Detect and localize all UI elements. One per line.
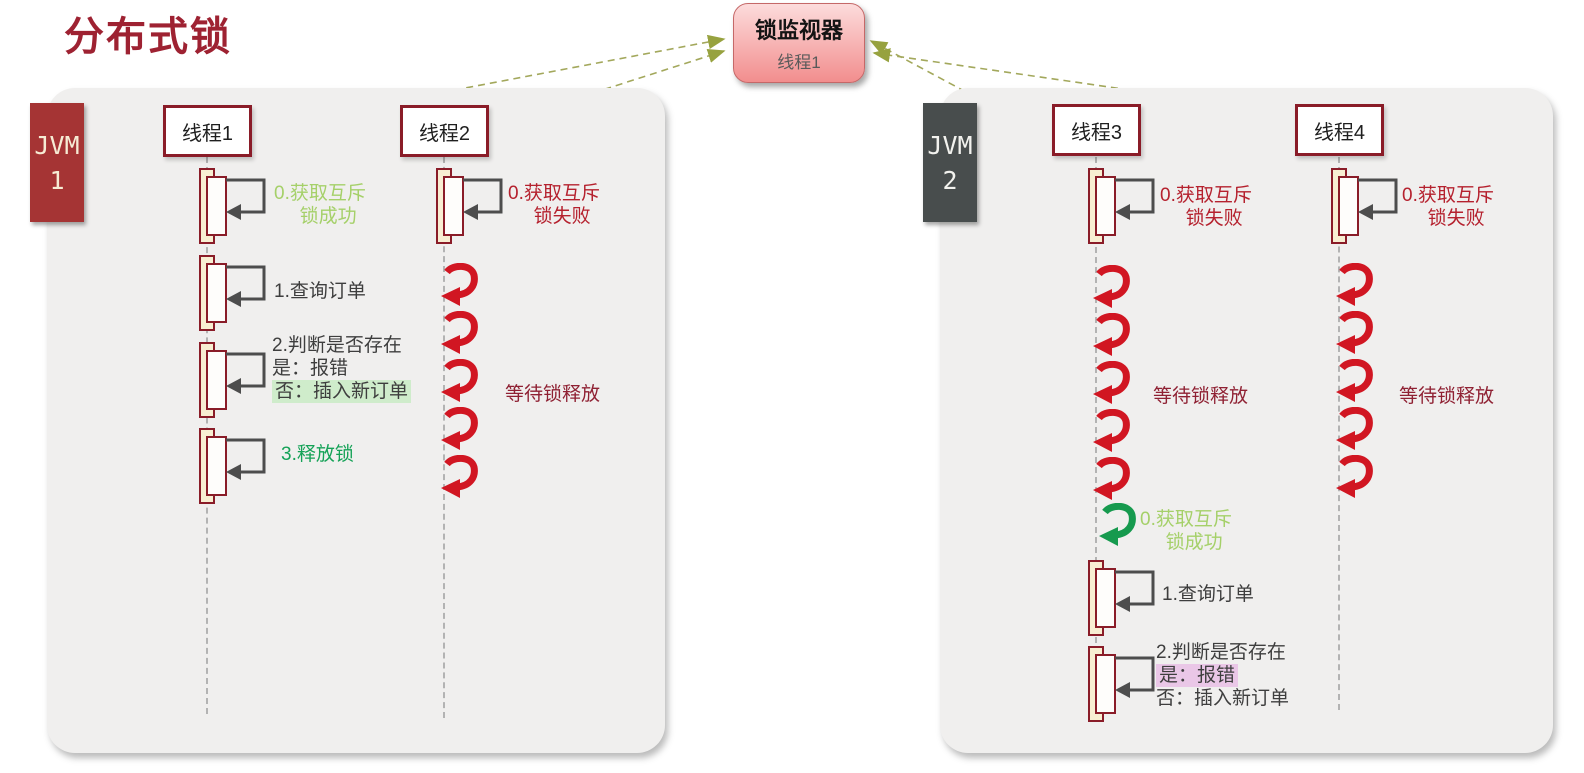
thread1-step1-label: 1.查询订单 — [274, 280, 366, 303]
thread4-fail-line2: 锁失败 — [1402, 207, 1494, 230]
self-call-arrow-icon — [1356, 176, 1404, 222]
thread3-activation-step0 — [1088, 168, 1164, 244]
lock-monitor-title: 锁监视器 — [755, 13, 843, 45]
self-call-arrow-icon — [224, 263, 272, 309]
thread1-step2-no-highlighted: 否：插入新订单 — [272, 380, 411, 403]
jvm1-label-box: JVM 1 — [30, 103, 84, 222]
spin-arrow-icon — [1090, 457, 1130, 501]
spin-arrow-icon — [1333, 359, 1373, 403]
thread4-name: 线程4 — [1314, 116, 1365, 145]
thread3-step1-label: 1.查询订单 — [1162, 583, 1254, 606]
thread3-success-line1: 0.获取互斥 — [1140, 508, 1232, 531]
thread3-acquire-fail-label: 0.获取互斥 锁失败 — [1160, 184, 1252, 230]
thread3-activation-step1 — [1088, 560, 1164, 636]
thread1-activation-step1 — [199, 255, 275, 331]
thread1-step2-label: 2.判断是否存在 是：报错 否：插入新订单 — [272, 334, 411, 403]
spin-arrow-icon — [1333, 311, 1373, 355]
spin-arrow-icon — [438, 407, 478, 451]
jvm1-line1: JVM — [34, 131, 79, 160]
self-call-arrow-icon — [1113, 568, 1161, 614]
thread2-wait-spin-arrows — [438, 263, 478, 503]
thread2-wait-label: 等待锁释放 — [505, 383, 600, 406]
spin-arrow-icon — [1333, 263, 1373, 307]
thread2-fail-line2: 锁失败 — [508, 205, 600, 228]
thread3-box: 线程3 — [1052, 104, 1141, 156]
thread4-activation-step0 — [1331, 168, 1407, 244]
spin-arrow-icon — [438, 359, 478, 403]
spin-arrow-icon — [438, 311, 478, 355]
thread1-box: 线程1 — [163, 105, 252, 157]
self-call-arrow-icon — [1113, 176, 1161, 222]
thread2-box: 线程2 — [400, 105, 489, 157]
jvm2-line1: JVM — [927, 131, 972, 160]
lock-monitor-subtitle: 线程1 — [777, 48, 820, 73]
thread1-acquire-success-label: 0.获取互斥 锁成功 — [274, 182, 366, 228]
thread1-step2-yes: 是：报错 — [272, 357, 411, 380]
spin-arrow-icon — [1090, 361, 1130, 405]
self-call-arrow-icon — [224, 176, 272, 222]
thread1-name: 线程1 — [182, 117, 233, 146]
thread4-wait-spin-arrows — [1333, 263, 1373, 503]
distributed-lock-diagram: 分布式锁 锁监视器 线程1 JVM 1 JVM 2 线程1 线程2 线程3 线程… — [0, 0, 1584, 773]
thread1-activation-step3 — [199, 428, 275, 504]
spin-arrow-icon — [438, 455, 478, 499]
spin-arrow-icon — [1090, 313, 1130, 357]
self-call-arrow-icon — [461, 176, 509, 222]
thread3-success-spin-arrow — [1096, 503, 1136, 551]
thread2-fail-line1: 0.获取互斥 — [508, 182, 600, 205]
thread1-acquire-line2: 锁成功 — [274, 205, 366, 228]
thread4-box: 线程4 — [1295, 104, 1384, 156]
thread3-step2-title: 2.判断是否存在 — [1156, 641, 1289, 664]
thread1-acquire-line1: 0.获取互斥 — [274, 182, 366, 205]
self-call-arrow-icon — [224, 350, 272, 396]
thread3-fail-line2: 锁失败 — [1160, 207, 1252, 230]
thread3-step2-no: 否：插入新订单 — [1156, 687, 1289, 710]
thread4-wait-label: 等待锁释放 — [1399, 385, 1494, 408]
thread3-step2-yes-highlighted: 是：报错 — [1156, 664, 1238, 687]
jvm2-label-box: JVM 2 — [923, 103, 977, 222]
spin-arrow-icon — [1090, 265, 1130, 309]
thread3-wait-spin-arrows — [1090, 265, 1130, 505]
thread1-activation-step2 — [199, 342, 275, 418]
spin-arrow-icon — [438, 263, 478, 307]
self-call-arrow-icon — [224, 436, 272, 482]
spin-arrow-icon — [1090, 409, 1130, 453]
thread2-acquire-fail-label: 0.获取互斥 锁失败 — [508, 182, 600, 228]
page-title: 分布式锁 — [64, 4, 232, 62]
thread3-acquire-success-label: 0.获取互斥 锁成功 — [1140, 508, 1232, 554]
thread1-release-label: 3.释放锁 — [281, 443, 354, 466]
thread4-fail-line1: 0.获取互斥 — [1402, 184, 1494, 207]
thread3-success-line2: 锁成功 — [1140, 531, 1232, 554]
thread4-acquire-fail-label: 0.获取互斥 锁失败 — [1402, 184, 1494, 230]
thread3-step2-label: 2.判断是否存在 是：报错 否：插入新订单 — [1156, 641, 1289, 710]
self-call-arrow-icon — [1113, 654, 1161, 700]
spin-arrow-icon — [1333, 455, 1373, 499]
lock-monitor-box: 锁监视器 线程1 — [733, 3, 865, 83]
thread1-step2-title: 2.判断是否存在 — [272, 334, 411, 357]
spin-arrow-icon — [1096, 503, 1136, 547]
thread2-activation-step0 — [436, 168, 512, 244]
thread3-activation-step2 — [1088, 646, 1164, 722]
thread2-name: 线程2 — [419, 117, 470, 146]
jvm2-line2: 2 — [942, 166, 957, 195]
spin-arrow-icon — [1333, 407, 1373, 451]
thread3-wait-label: 等待锁释放 — [1153, 385, 1248, 408]
jvm1-line2: 1 — [49, 166, 64, 195]
thread3-name: 线程3 — [1071, 116, 1122, 145]
thread3-fail-line1: 0.获取互斥 — [1160, 184, 1252, 207]
thread1-activation-step0 — [199, 168, 275, 244]
